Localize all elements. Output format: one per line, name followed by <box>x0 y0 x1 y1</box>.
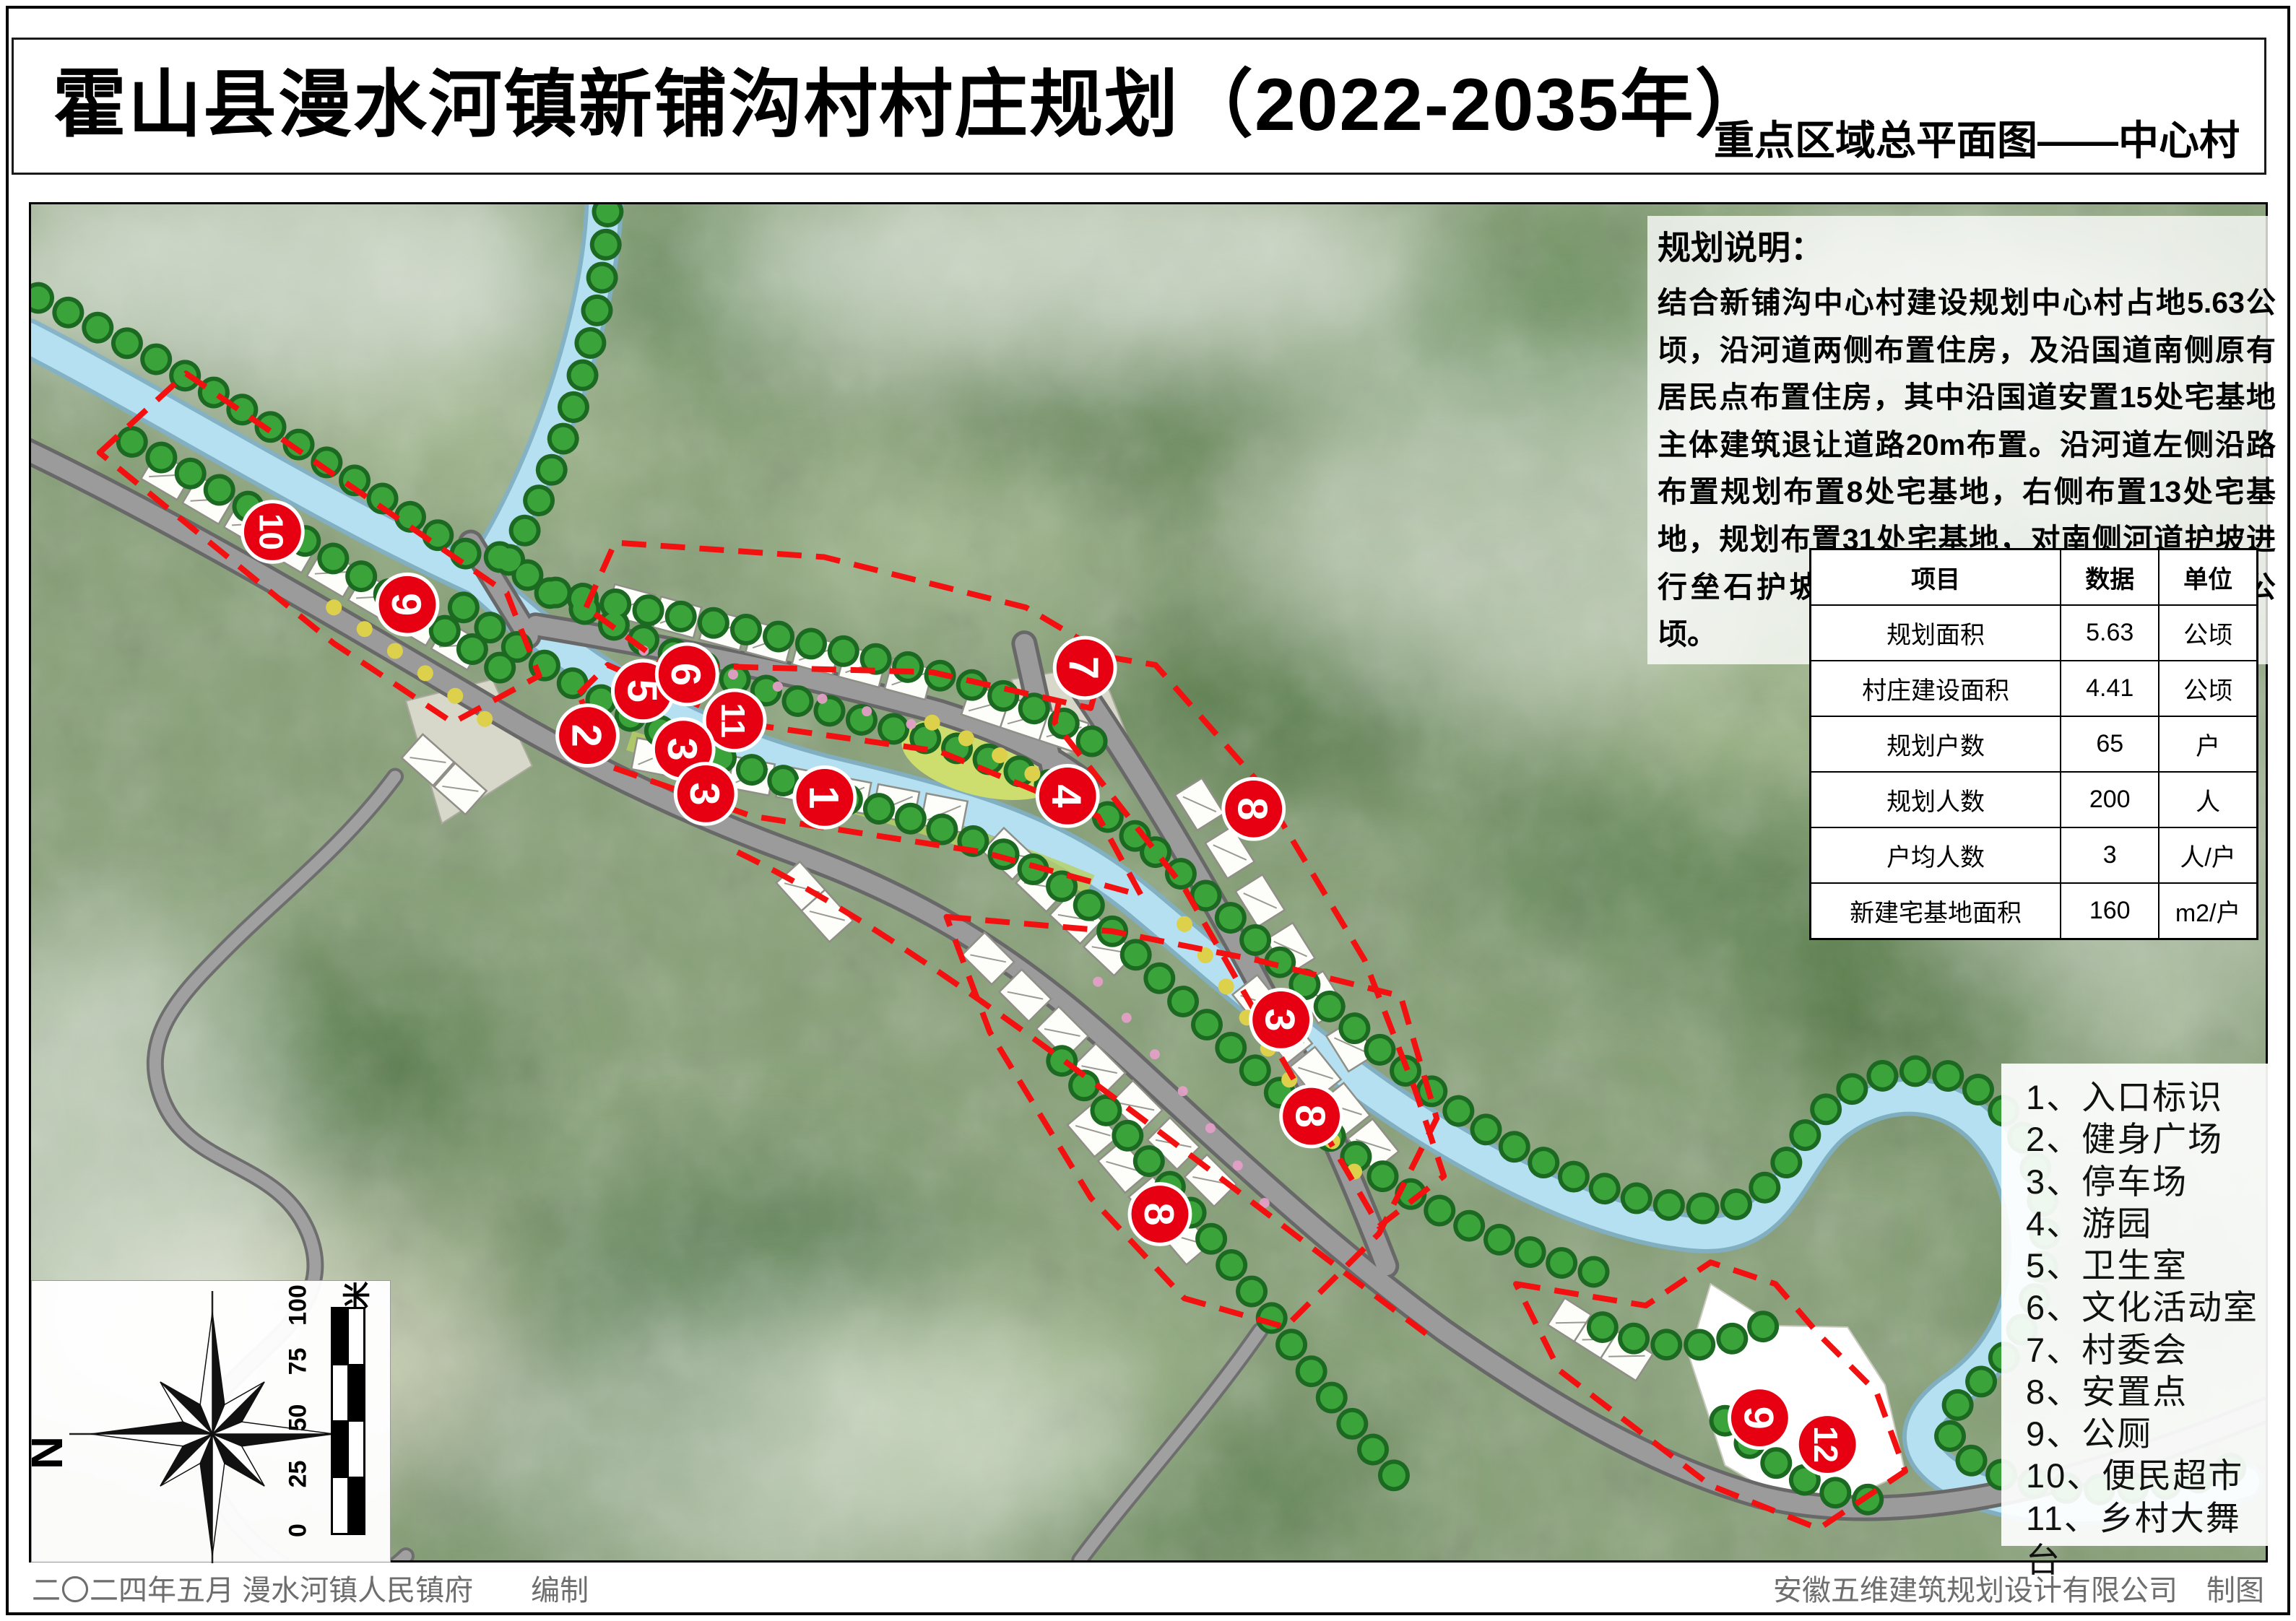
map-marker-number: 10 <box>252 513 290 550</box>
scale-bar-segment <box>332 1421 348 1477</box>
map-marker: 4 <box>1037 766 1098 827</box>
table-row: 规划人数200人 <box>1811 772 2258 827</box>
table-cell: 4.41 <box>2061 661 2159 716</box>
legend-item: 8、安置点 <box>2026 1371 2271 1413</box>
table-row: 村庄建设面积4.41公顷 <box>1811 661 2258 716</box>
table-row: 户均人数3人/户 <box>1811 827 2258 883</box>
scale-bar-tick: 0 <box>285 1505 313 1556</box>
table-row: 新建宅基地面积160m2/户 <box>1811 883 2258 939</box>
legend-item: 4、游园 <box>2026 1203 2271 1245</box>
footer: 二〇二四年五月 漫水河镇人民镇府 编制 安徽五维建筑规划设计有限公司 制图 <box>32 1567 2264 1609</box>
map-marker-number: 4 <box>1043 784 1089 807</box>
table-cell: 村庄建设面积 <box>1811 661 2061 716</box>
table-cell: 3 <box>2061 827 2159 883</box>
legend-item: 7、村委会 <box>2026 1329 2271 1371</box>
table-cell: 65 <box>2061 716 2159 772</box>
notes-heading: 规划说明： <box>1658 222 2276 269</box>
page-title: 霍山县漫水河镇新铺沟村村庄规划（2022-2035年） <box>53 45 1770 152</box>
map-marker-number: 8 <box>1287 1105 1333 1128</box>
scale-bar-unit: 米 <box>334 1281 374 1308</box>
scale-bar-segment <box>332 1477 348 1534</box>
map-marker-number: 1 <box>800 786 846 809</box>
scale-bar-tick: 50 <box>285 1393 313 1443</box>
table-cell: 200 <box>2061 772 2159 827</box>
map-marker-number: 12 <box>1807 1426 1845 1463</box>
map-marker: 8 <box>1130 1184 1190 1245</box>
table-cell: 户 <box>2159 716 2257 772</box>
table-cell: 规划户数 <box>1811 716 2061 772</box>
table-cell: m2/户 <box>2159 883 2257 939</box>
table-cell: 160 <box>2061 883 2159 939</box>
map-marker: 3 <box>675 764 736 825</box>
title-band: 霍山县漫水河镇新铺沟村村庄规划（2022-2035年） 重点区域总平面图——中心… <box>12 38 2266 175</box>
planning-data-table: 项目数据单位 规划面积5.63公顷村庄建设面积4.41公顷规划户数65户规划人数… <box>1809 548 2258 940</box>
table-header-cell: 单位 <box>2159 549 2257 606</box>
scale-bar <box>331 1307 365 1535</box>
map-marker-number: 3 <box>1257 1008 1303 1031</box>
table-cell: 公顷 <box>2159 661 2257 716</box>
legend-item: 9、公厕 <box>2026 1413 2271 1455</box>
map-marker: 12 <box>1797 1414 1858 1475</box>
scale-bar-tick: 100 <box>285 1280 313 1331</box>
map-marker: 10 <box>242 502 303 562</box>
map-marker-number: 9 <box>1735 1407 1781 1430</box>
footer-credit-right: 安徽五维建筑规划设计有限公司 制图 <box>1773 1567 2264 1609</box>
footer-credit-left: 二〇二四年五月 漫水河镇人民镇府 编制 <box>32 1567 589 1609</box>
legend-item: 5、卫生室 <box>2026 1245 2271 1287</box>
table-cell: 公顷 <box>2159 605 2257 661</box>
plan-sheet: 霍山县漫水河镇新铺沟村村庄规划（2022-2035年） 重点区域总平面图——中心… <box>0 0 2296 1621</box>
scale-bar-segment <box>332 1365 348 1421</box>
table-cell: 规划面积 <box>1811 605 2061 661</box>
table-cell: 人/户 <box>2159 827 2257 883</box>
table-cell: 户均人数 <box>1811 827 2061 883</box>
map-legend: 1、入口标识2、健身广场3、停车场4、游园5、卫生室6、文化活动室7、村委会8、… <box>2001 1064 2271 1546</box>
table-row: 规划面积5.63公顷 <box>1811 605 2258 661</box>
map-marker: 7 <box>1054 638 1115 698</box>
legend-item: 1、入口标识 <box>2026 1077 2271 1118</box>
compass-north-label: N <box>32 1436 72 1469</box>
legend-item: 6、文化活动室 <box>2026 1287 2271 1329</box>
legend-item: 3、停车场 <box>2026 1161 2271 1203</box>
scale-bar-segment <box>332 1308 348 1365</box>
scale-bar-tick: 25 <box>285 1449 313 1500</box>
map-marker-number: 6 <box>662 663 709 686</box>
table-cell: 5.63 <box>2061 605 2159 661</box>
map-marker: 6 <box>657 644 717 705</box>
table-header-cell: 数据 <box>2061 549 2159 606</box>
page-subtitle: 重点区域总平面图——中心村 <box>1714 108 2240 167</box>
map-marker-number: 3 <box>681 782 727 805</box>
map-marker-number: 9 <box>383 593 429 616</box>
map-marker-number: 3 <box>659 738 705 761</box>
table-cell: 人 <box>2159 772 2257 827</box>
table-cell: 新建宅基地面积 <box>1811 883 2061 939</box>
map-marker: 2 <box>558 705 618 766</box>
map-marker-number: 11 <box>714 703 752 737</box>
map-marker-number: 2 <box>563 724 609 747</box>
compass-scale-box: N 1007550250米 <box>31 1280 391 1563</box>
table-cell: 规划人数 <box>1811 772 2061 827</box>
map-marker: 8 <box>1281 1086 1342 1147</box>
map-marker-number: 7 <box>1060 656 1106 679</box>
legend-item: 2、健身广场 <box>2026 1118 2271 1160</box>
map-marker: 9 <box>1729 1388 1790 1448</box>
scale-bar-segment <box>348 1365 364 1421</box>
scale-bar-tick: 75 <box>285 1337 313 1387</box>
map-marker-number: 8 <box>1135 1202 1182 1225</box>
scale-bar-segment <box>348 1308 364 1365</box>
table-header-cell: 项目 <box>1811 549 2061 606</box>
table-row: 规划户数65户 <box>1811 716 2258 772</box>
map-marker: 9 <box>377 574 438 635</box>
map-marker: 3 <box>1251 990 1312 1051</box>
scale-bar-segment <box>348 1421 364 1477</box>
legend-item: 10、便民超市 <box>2026 1455 2271 1497</box>
map-marker: 8 <box>1223 778 1284 839</box>
map-area: 10956113231478388912 规划说明： 结合新铺沟中心村建设规划中… <box>29 202 2268 1563</box>
map-marker-number: 8 <box>1229 797 1275 820</box>
map-marker: 1 <box>794 768 855 828</box>
scale-bar-segment <box>348 1477 364 1534</box>
